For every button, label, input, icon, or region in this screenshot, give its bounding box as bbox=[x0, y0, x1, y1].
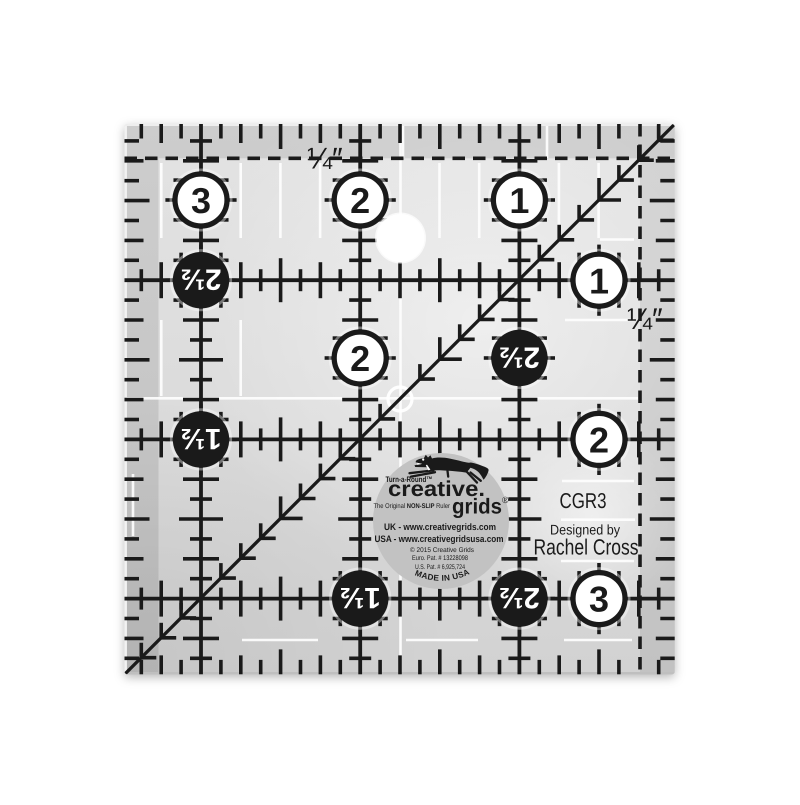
svg-text:¼″: ¼″ bbox=[307, 143, 343, 176]
svg-text:3: 3 bbox=[589, 579, 609, 620]
svg-text:The Original NON-SLIP Ruler: The Original NON-SLIP Ruler bbox=[374, 503, 451, 510]
svg-text:¼″: ¼″ bbox=[627, 303, 663, 336]
svg-text:Rachel Cross: Rachel Cross bbox=[534, 535, 639, 560]
svg-text:2: 2 bbox=[350, 180, 370, 221]
svg-text:1: 1 bbox=[589, 260, 609, 301]
svg-text:1: 1 bbox=[509, 180, 529, 221]
svg-text:U.S. Pat. # 6,925,724: U.S. Pat. # 6,925,724 bbox=[415, 564, 465, 571]
svg-text:2½: 2½ bbox=[499, 581, 540, 614]
svg-text:© 2015 Creative Grids: © 2015 Creative Grids bbox=[410, 547, 475, 554]
svg-text:2½: 2½ bbox=[499, 340, 540, 373]
svg-text:®: ® bbox=[502, 495, 509, 505]
svg-text:USA - www.creativegridsusa.com: USA - www.creativegridsusa.com bbox=[375, 533, 504, 544]
svg-text:2: 2 bbox=[589, 420, 609, 461]
svg-text:CGR3: CGR3 bbox=[560, 489, 607, 513]
svg-text:grids: grids bbox=[452, 495, 502, 519]
svg-text:2½: 2½ bbox=[180, 263, 221, 296]
svg-text:UK - www.creativegrids.com: UK - www.creativegrids.com bbox=[384, 521, 496, 532]
svg-text:2: 2 bbox=[350, 338, 370, 379]
svg-text:1½: 1½ bbox=[180, 422, 221, 455]
svg-text:3: 3 bbox=[191, 180, 211, 221]
svg-text:1½: 1½ bbox=[340, 581, 381, 614]
svg-text:Euro. Pat. # 13228098: Euro. Pat. # 13228098 bbox=[412, 555, 468, 562]
